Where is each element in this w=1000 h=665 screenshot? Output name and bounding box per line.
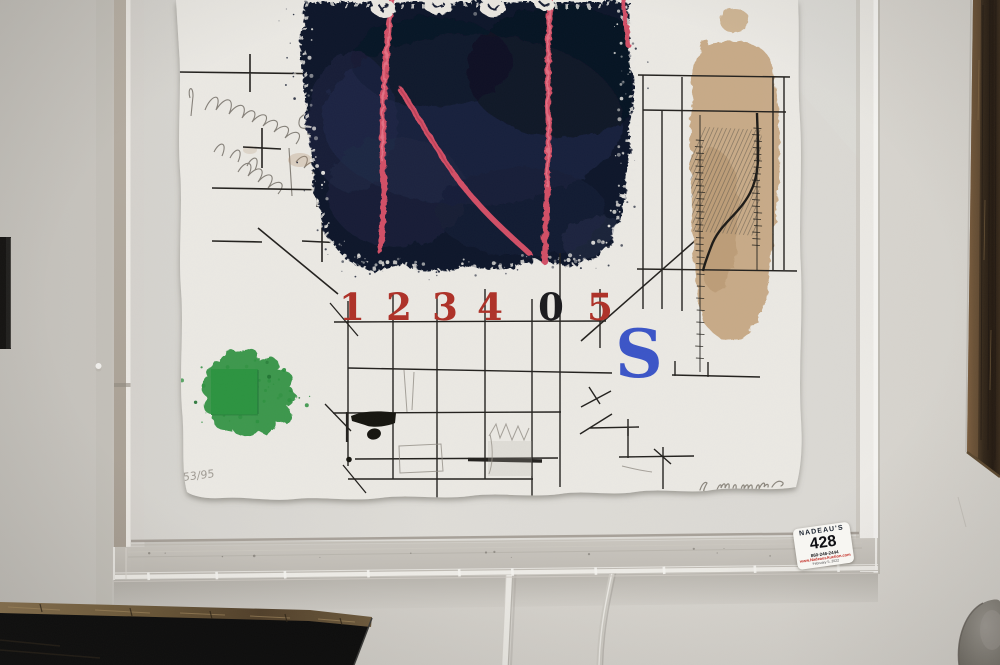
photo-grain	[0, 0, 1000, 665]
photo-canvas: 1 2 3 4 0 5 S 53/95	[0, 0, 1000, 665]
auction-sticker: NADEAU'S 428 860-246-2444 www.NadeausAuc…	[792, 522, 854, 571]
auction-gallery-photo: 1 2 3 4 0 5 S 53/95 NADEAU'S 428 860	[0, 0, 1000, 665]
